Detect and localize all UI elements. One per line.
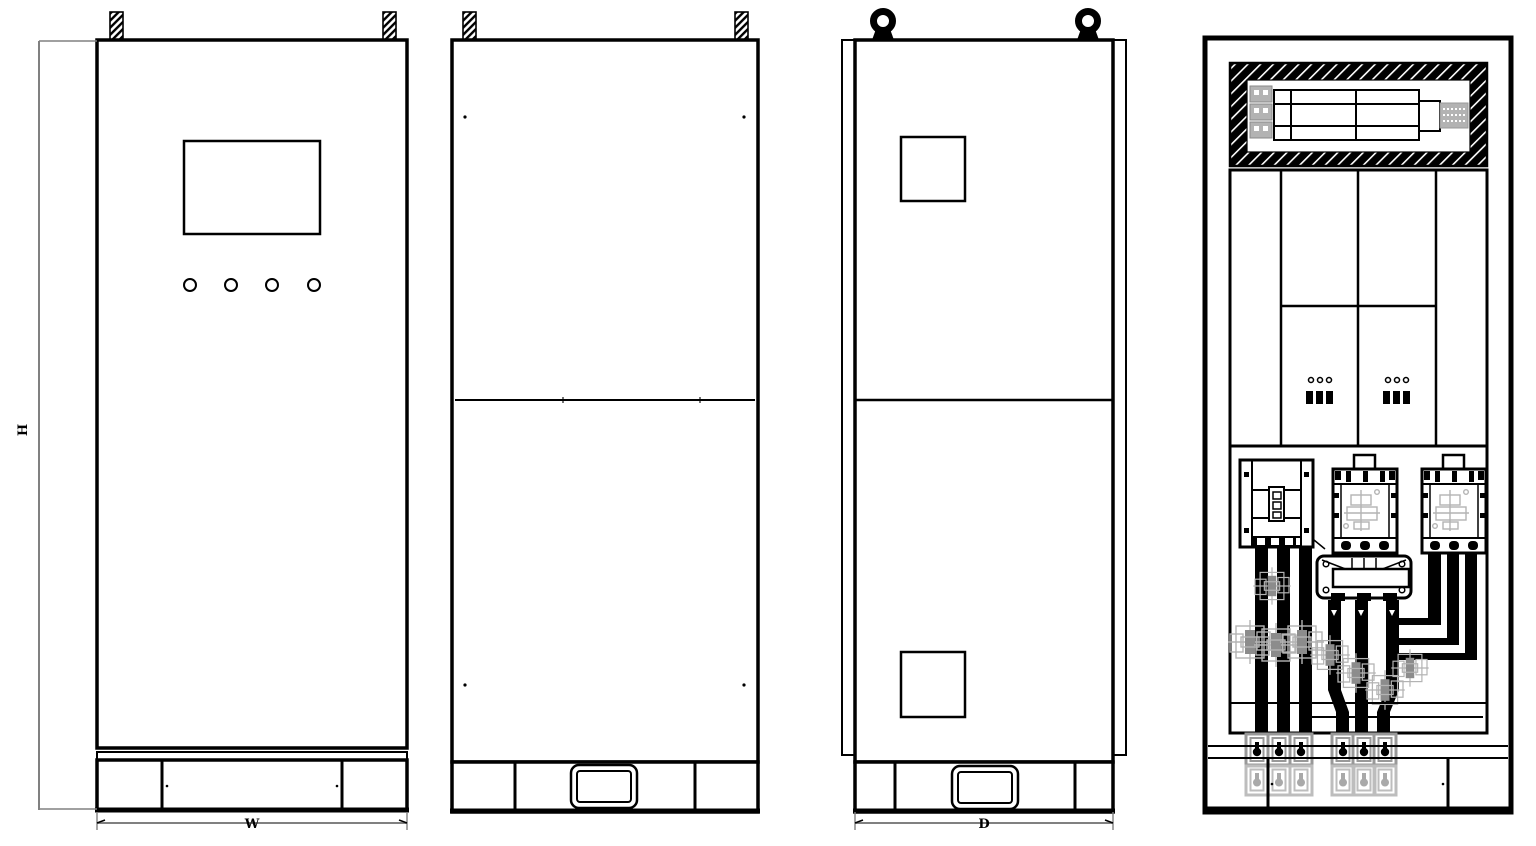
rear-view [842, 12, 1126, 813]
height-dimension: H [16, 41, 97, 810]
busbar-assembly [1317, 556, 1411, 601]
lifting-stud [110, 12, 123, 41]
width-dimension-label: W [244, 817, 260, 832]
cable-terminal [1332, 734, 1354, 765]
depth-dimension: D [855, 812, 1113, 832]
plinth [97, 760, 407, 810]
width-dimension: W [97, 812, 407, 832]
circuit-breaker [1240, 460, 1325, 549]
lifting-stud [735, 12, 748, 41]
cable-terminal [1374, 734, 1396, 765]
internal-layout-view [1205, 38, 1511, 812]
din-terminal-stack [1250, 86, 1272, 138]
door-handle [952, 766, 1018, 809]
cable-terminal [1353, 734, 1375, 765]
side-flange [842, 40, 855, 755]
display-screen [184, 141, 320, 234]
drawing-canvas: H W [0, 0, 1536, 846]
contactor [1333, 455, 1397, 553]
lifting-stud [463, 12, 476, 41]
lifting-eye [1077, 12, 1099, 41]
cable-terminal [1246, 734, 1268, 765]
front-view [95, 12, 409, 810]
vent-cutout [901, 652, 965, 717]
contactor [1422, 455, 1486, 553]
vent-cutout [901, 137, 965, 201]
height-dimension-label: H [16, 424, 31, 436]
cable-terminal [1268, 734, 1290, 765]
depth-dimension-label: D [978, 817, 989, 832]
door-handle [571, 765, 637, 808]
side-view [450, 12, 760, 812]
lifting-eye [872, 12, 894, 41]
cable-terminal [1290, 734, 1312, 765]
hatched-header-panel [1230, 63, 1487, 166]
lifting-stud [383, 12, 396, 41]
cabinet-engineering-drawing: H W [0, 0, 1536, 846]
